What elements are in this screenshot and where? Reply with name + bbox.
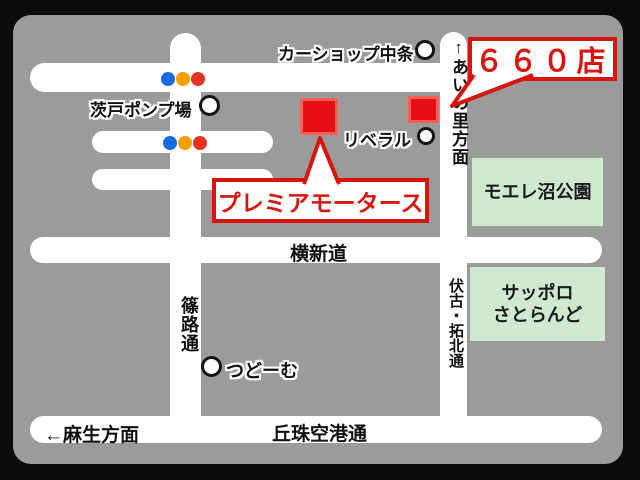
signal-red-dot — [193, 136, 207, 150]
tsudome-marker-icon — [201, 356, 222, 377]
premier-motors-callout-label: プレミアモータース — [218, 184, 424, 218]
signal-red-dot — [191, 72, 205, 86]
moere-park-label: モエレ沼公園 — [484, 181, 592, 204]
store-building-marker — [300, 98, 338, 135]
yokoshindo-road-label: 横新道 — [290, 239, 347, 266]
liberal-label: リベラル — [343, 126, 411, 151]
signal-yellow-dot — [178, 136, 192, 150]
pump-station-marker-icon — [199, 95, 220, 116]
car-shop-marker-icon — [415, 40, 435, 60]
satoland-label: サッポロ さとらんど — [493, 282, 582, 327]
signal-blue-dot — [163, 136, 177, 150]
store-660-callout-label: ６６０店 — [474, 38, 610, 80]
asabu-direction-label: ←麻生方面 — [44, 420, 139, 447]
access-map: モエレ沼公園 サッポロ さとらんど カーショップ中条 茨戸ポンプ場 リベラル つ… — [0, 0, 640, 480]
liberal-marker-icon — [417, 127, 435, 145]
tsudome-label: つどーむ — [226, 357, 298, 383]
traffic-light-icon — [163, 136, 207, 150]
road-top-horizontal — [30, 63, 466, 92]
store-660-building-marker — [408, 96, 439, 123]
area-moere-park: モエレ沼公園 — [472, 158, 603, 226]
barato-pump-label: 茨戸ポンプ場 — [90, 96, 192, 121]
fushiko-takuhoku-road-label: 伏古・拓北通 — [445, 278, 466, 368]
signal-blue-dot — [161, 72, 175, 86]
area-sapporo-satoland: サッポロ さとらんど — [470, 267, 605, 341]
car-shop-nakajo-label: カーショップ中条 — [278, 40, 414, 65]
signal-yellow-dot — [176, 72, 190, 86]
premier-motors-callout: プレミアモータース — [212, 178, 429, 223]
store-660-callout: ６６０店 — [468, 37, 617, 81]
okadama-airport-road-label: 丘珠空港通 — [272, 419, 367, 446]
traffic-light-icon — [161, 72, 205, 86]
shinoro-road-label: 篠路通 — [176, 296, 202, 353]
